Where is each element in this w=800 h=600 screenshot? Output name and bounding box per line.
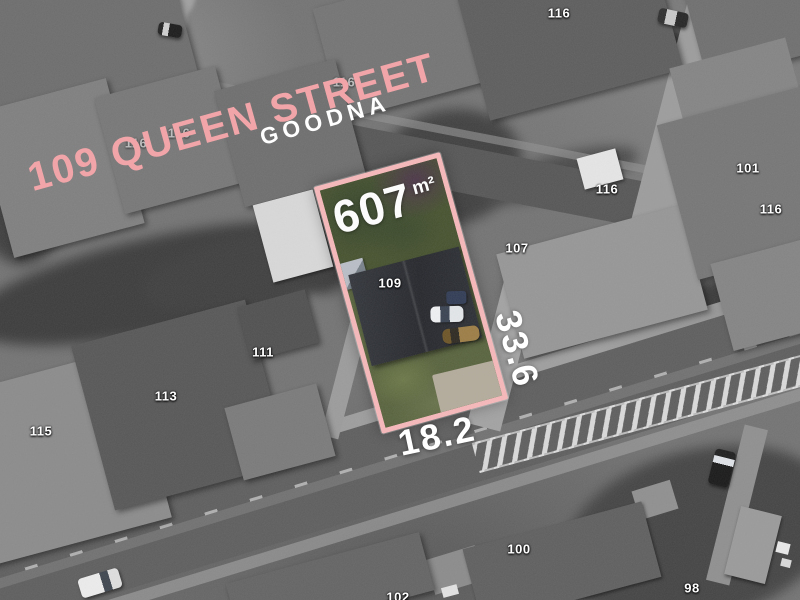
house-number-label: 113 <box>155 389 177 404</box>
house-number-label: 101 <box>736 161 759 176</box>
house-number-label: 111 <box>252 345 274 360</box>
house-number-label: 102 <box>386 590 409 600</box>
house-number-label: 98 <box>684 581 699 596</box>
house-number-label: 107 <box>505 241 528 256</box>
house-number-label: 109 <box>378 276 401 291</box>
house-number-label: 116 <box>548 6 570 21</box>
house-number-label: 116 <box>760 202 782 217</box>
aerial-photo: 607 m² 116116116116116101116107109111113… <box>0 0 800 600</box>
house-number-label: 115 <box>30 424 52 439</box>
house-number-label: 100 <box>507 542 530 557</box>
house-number-label: 116 <box>596 182 618 197</box>
